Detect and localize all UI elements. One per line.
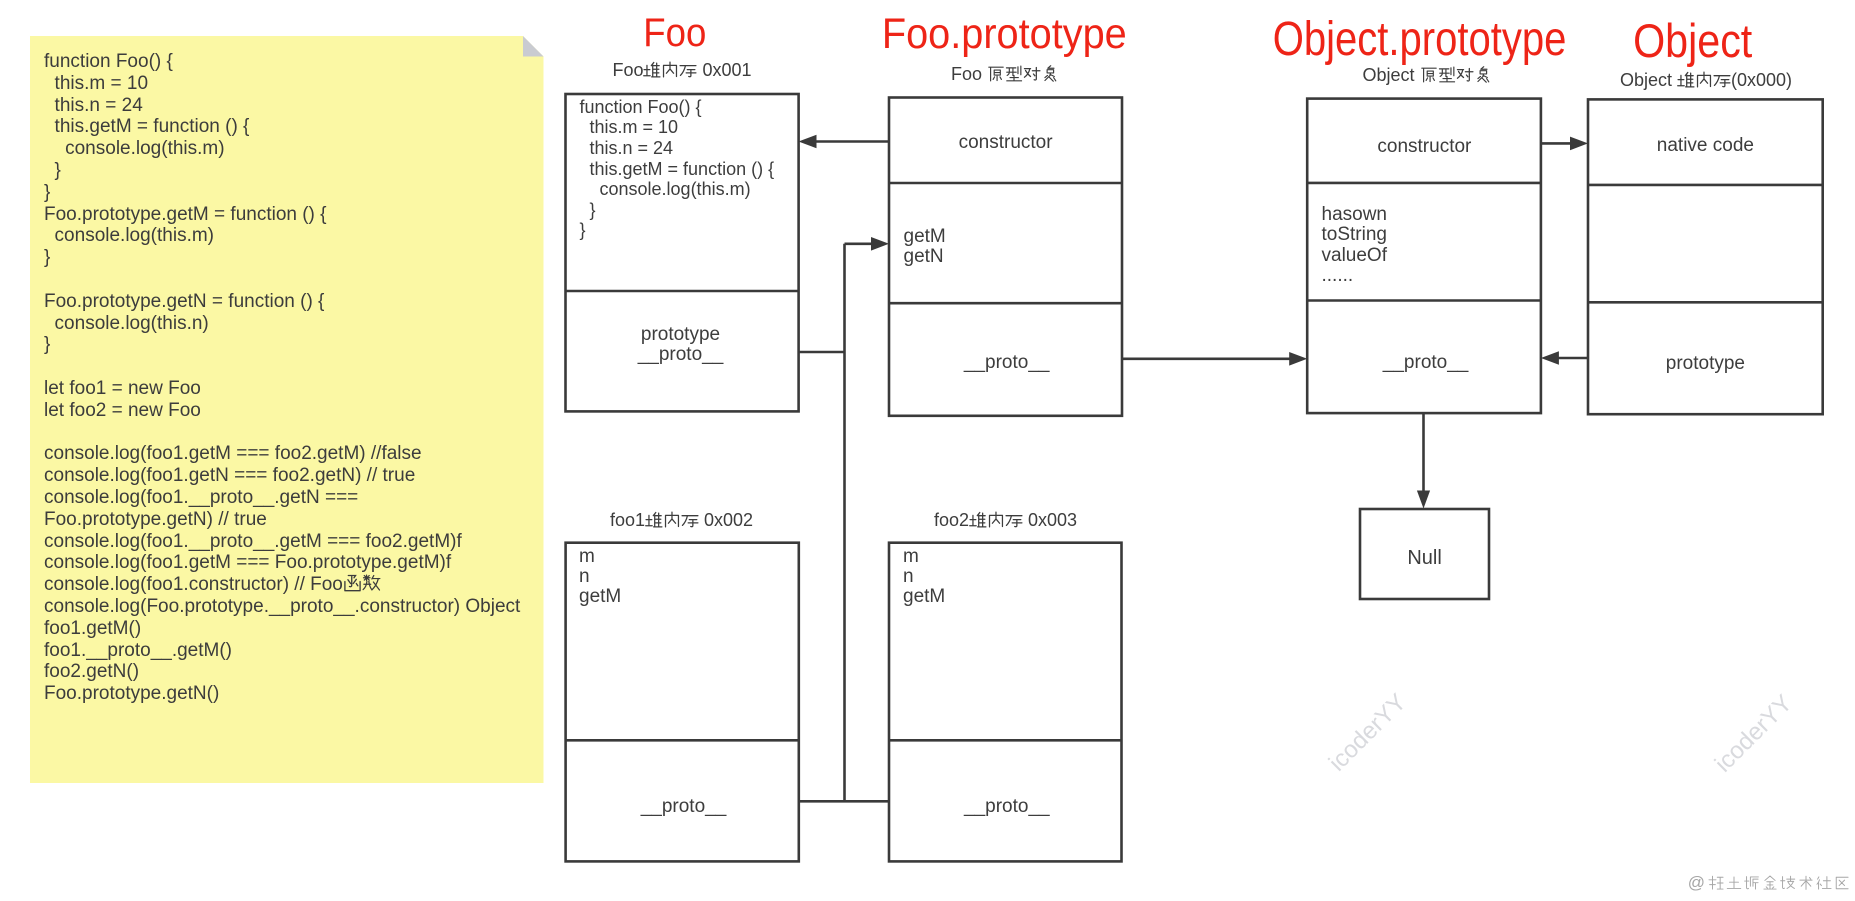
svg-text:icoderYY: icoderYY xyxy=(1324,689,1412,777)
svg-text:icoderYY: icoderYY xyxy=(1710,690,1798,778)
